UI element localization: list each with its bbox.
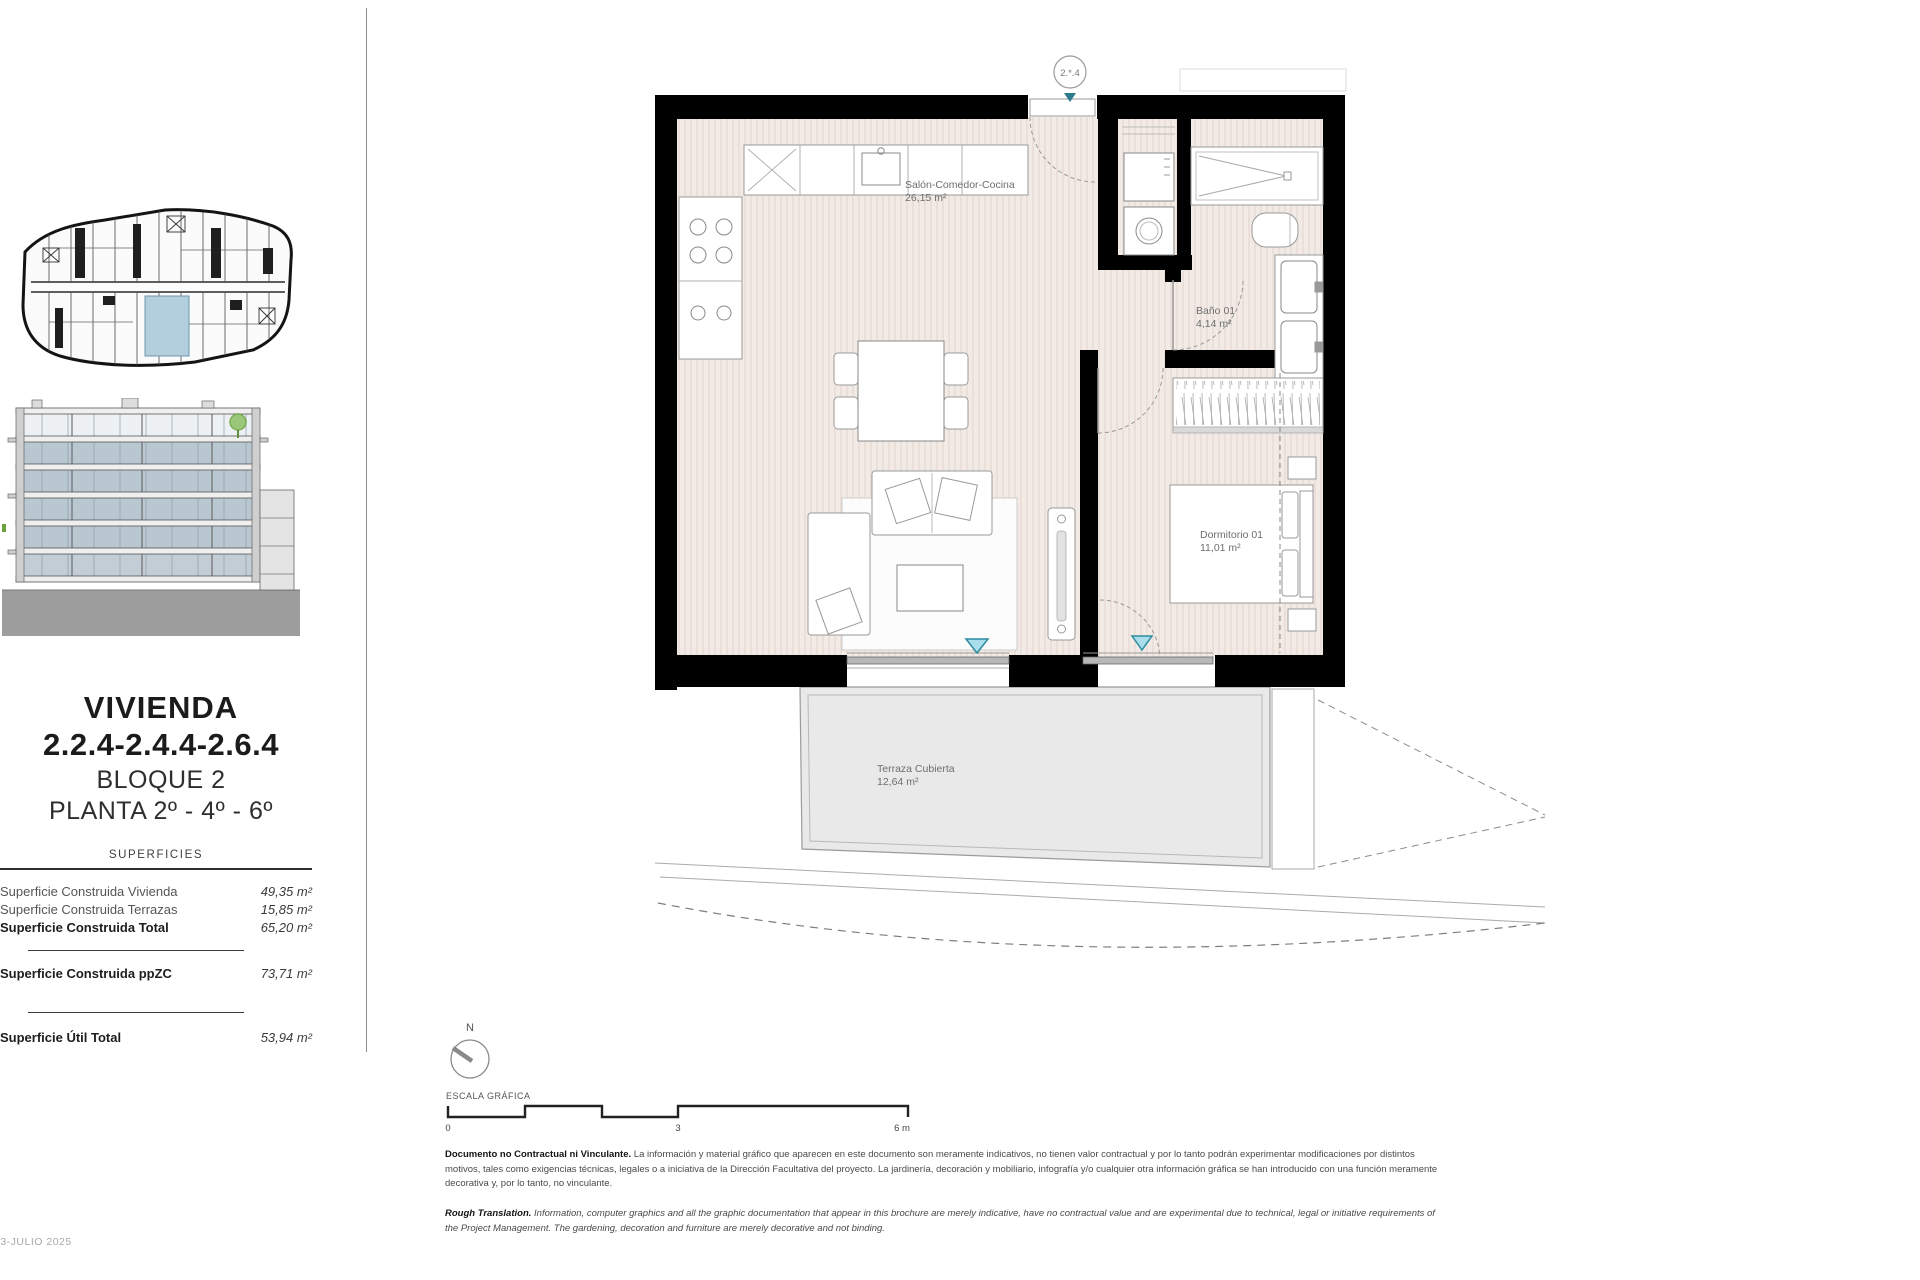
surfaces-table-title: SUPERFICIES [0,849,312,861]
dining-table [858,341,944,441]
room-area: 4,14 m² [1196,318,1232,330]
room-name: Baño 01 [1196,305,1235,317]
room-area: 26,15 m² [905,192,947,204]
ground [2,590,300,636]
row-value: 65,20 m² [261,920,312,936]
nightstand [1288,457,1316,479]
key-plan-highlighted-unit [145,296,189,356]
radiator [1048,508,1075,640]
vertical-divider [366,8,367,1052]
block-label: BLOQUE 2 [0,766,322,795]
table-row: Superficie Construida ppZC 73,71 m² [0,966,312,982]
building-elevation [2,398,300,643]
table-rule-top [0,868,312,870]
north-label: N [466,1022,474,1034]
table-rule-mid [28,1012,244,1013]
table-row: Superficie Construida Vivienda 49,35 m² [0,884,312,900]
row-value: 73,71 m² [261,966,312,982]
wardrobe [1173,378,1323,433]
coffee-table [897,565,963,611]
disclaimer-es: Documento no Contractual ni Vinculante. … [445,1148,1445,1192]
row-label: Superficie Útil Total [0,1030,121,1046]
row-label: Superficie Construida Vivienda [0,884,178,900]
scale-tick: 3 [675,1123,680,1134]
table-rule-mid [28,950,244,951]
washing-machine [1124,207,1174,255]
key-plan [15,190,300,390]
shower [1191,147,1323,205]
scale-tick: 0 [445,1123,450,1134]
room-area: 12,64 m² [877,776,919,788]
room-name: Terraza Cubierta [877,763,955,775]
row-label: Superficie Construida Terrazas [0,902,178,918]
document-date: 03-JULIO 2025 [0,1236,72,1248]
row-value: 53,94 m² [261,1030,312,1046]
disclaimer-en-text: Information, computer graphics and all t… [445,1208,1435,1234]
floor-plan: 2.*.4 Salón-Comedor-Cocina 26,15 m² Baño… [640,55,1580,985]
north-arrow: N [451,1022,489,1078]
unit-marker: 2.*.4 [1054,56,1086,102]
elevation-roof-items [32,398,214,408]
table-row: Superficie Útil Total 53,94 m² [0,1030,312,1046]
unit-marker-label: 2.*.4 [1060,68,1080,79]
exterior-landing [1180,69,1346,91]
table-row: Superficie Construida Total 65,20 m² [0,920,312,936]
vanity [1275,255,1323,383]
scale-tick: 6 m [894,1123,910,1134]
disclaimer-en: Rough Translation. Information, computer… [445,1207,1445,1236]
disclaimer: Documento no Contractual ni Vinculante. … [445,1148,1445,1252]
row-label: Superficie Construida Total [0,920,169,936]
room-name: Salón-Comedor-Cocina [905,179,1015,191]
toilet [1252,213,1298,247]
disclaimer-en-lead: Rough Translation. [445,1208,531,1219]
scale-label: ESCALA GRÁFICA [446,1091,531,1101]
row-value: 15,85 m² [261,902,312,918]
room-area: 11,01 m² [1200,542,1241,554]
scale-bar: 0 3 6 m [445,1106,910,1134]
legend: N ESCALA GRÁFICA 0 3 6 m [440,1013,920,1135]
nightstand [1288,609,1316,631]
green-marker [2,524,6,532]
elevation-annex [260,490,294,590]
row-label: Superficie Construida ppZC [0,966,172,982]
terrace-pillar [1272,689,1314,869]
row-value: 49,35 m² [261,884,312,900]
table-row: Superficie Construida Terrazas 15,85 m² [0,902,312,918]
disclaimer-es-lead: Documento no Contractual ni Vinculante. [445,1149,631,1160]
room-name: Dormitorio 01 [1200,529,1263,541]
kitchen-sink [862,153,900,185]
unit-numbers: 2.2.4-2.4.4-2.6.4 [0,727,322,763]
floor-label: PLANTA 2º - 4º - 6º [0,797,322,826]
unit-title: VIVIENDA [0,690,322,726]
brochure-page: VIVIENDA 2.2.4-2.4.4-2.6.4 BLOQUE 2 PLAN… [0,0,1920,1280]
